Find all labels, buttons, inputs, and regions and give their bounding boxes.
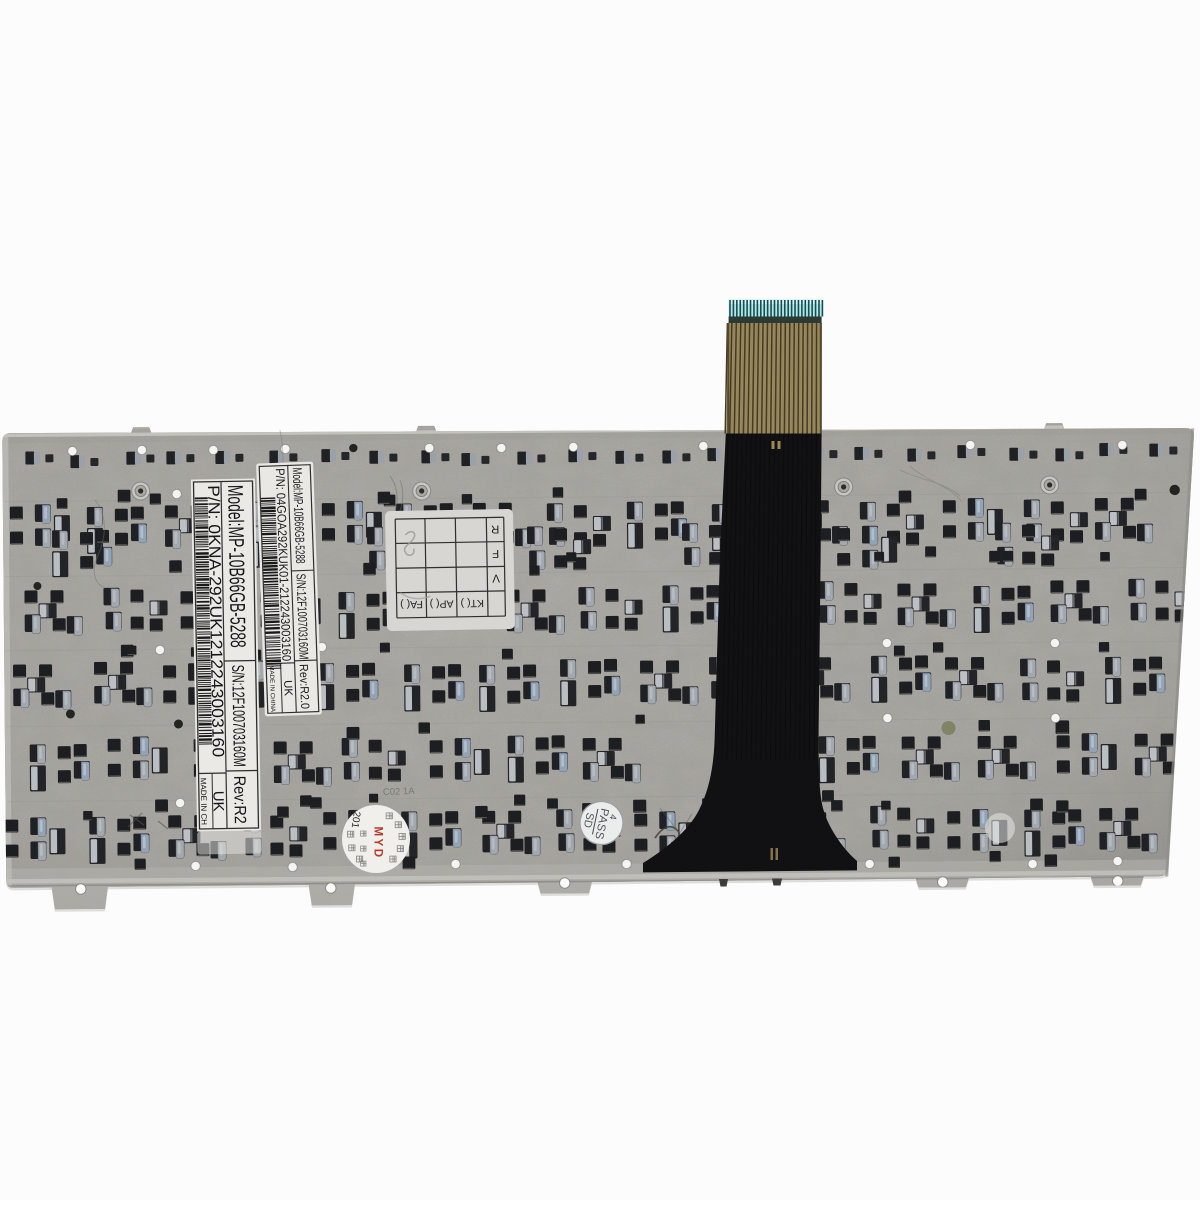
svg-text:V: V	[492, 572, 500, 584]
svg-text:S/N:12F100703160M: S/N:12F100703160M	[228, 665, 249, 767]
svg-text:R: R	[491, 523, 500, 535]
svg-text:AP( ): AP( )	[430, 597, 454, 609]
svg-text:KT( ): KT( )	[461, 597, 485, 609]
svg-text:UK: UK	[209, 791, 226, 812]
svg-text:UK: UK	[281, 680, 294, 697]
svg-text:FA( ): FA( )	[400, 598, 423, 610]
svg-text:MADE IN CH: MADE IN CH	[199, 778, 209, 825]
svg-text:S/N:12F100703160M: S/N:12F100703160M	[293, 573, 311, 659]
svg-text:Model:MP-10B66GB-5288: Model:MP-10B66GB-5288	[223, 485, 250, 648]
svg-text:C02 1A: C02 1A	[383, 786, 416, 798]
svg-text:Rev:R2: Rev:R2	[230, 776, 249, 824]
svg-text:F: F	[492, 547, 499, 559]
svg-text:Rev:R2.0: Rev:R2.0	[297, 664, 313, 710]
svg-text:MYD: MYD	[372, 826, 384, 859]
